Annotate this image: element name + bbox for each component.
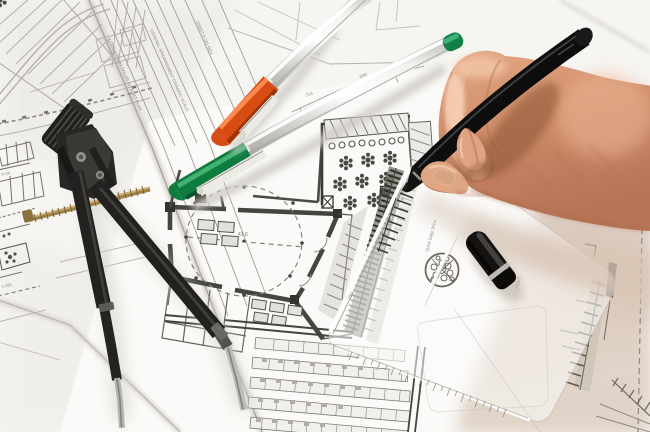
svg-text:41,6: 41,6 <box>238 232 248 238</box>
